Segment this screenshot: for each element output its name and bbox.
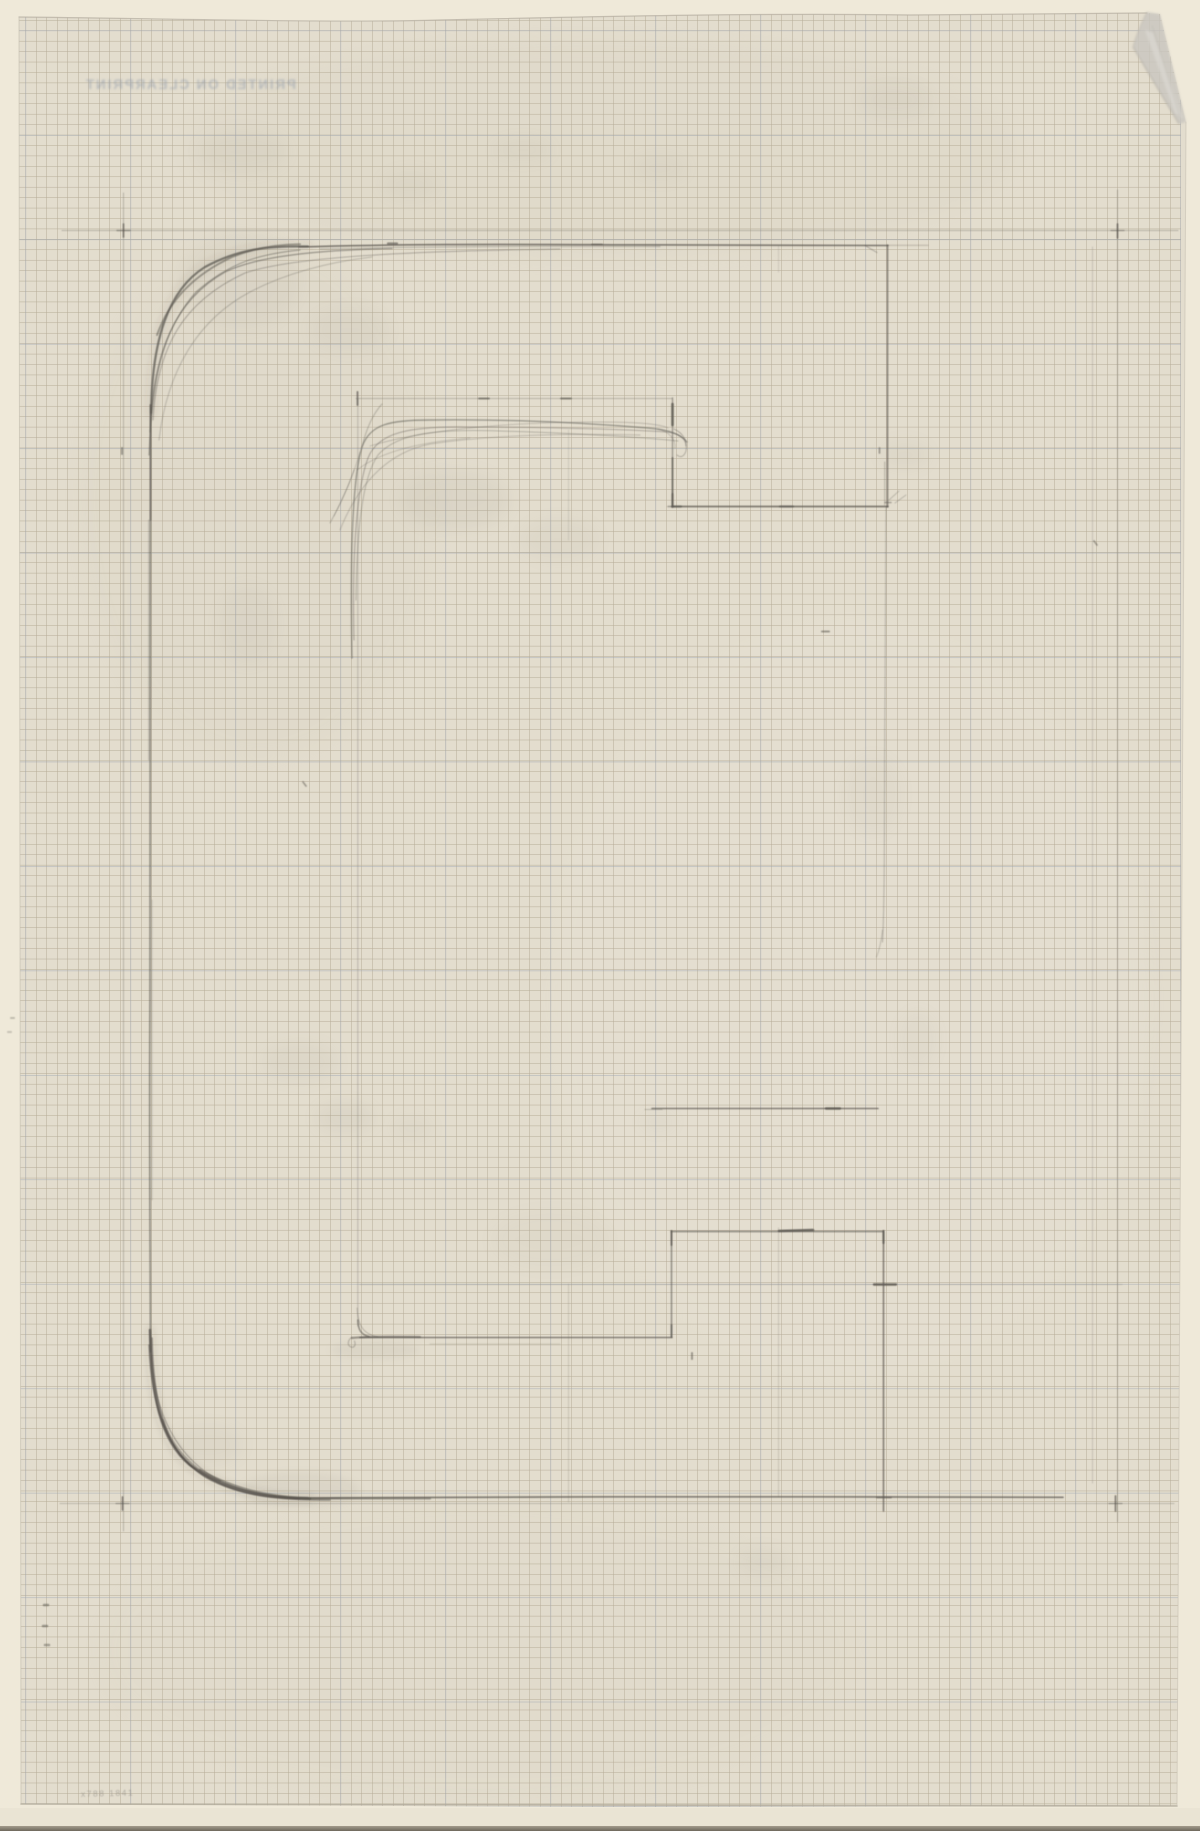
svg-text:x788 1841: x788 1841 xyxy=(81,1788,134,1799)
svg-text:PRINTED ON CLEARPRINT: PRINTED ON CLEARPRINT xyxy=(84,77,296,92)
